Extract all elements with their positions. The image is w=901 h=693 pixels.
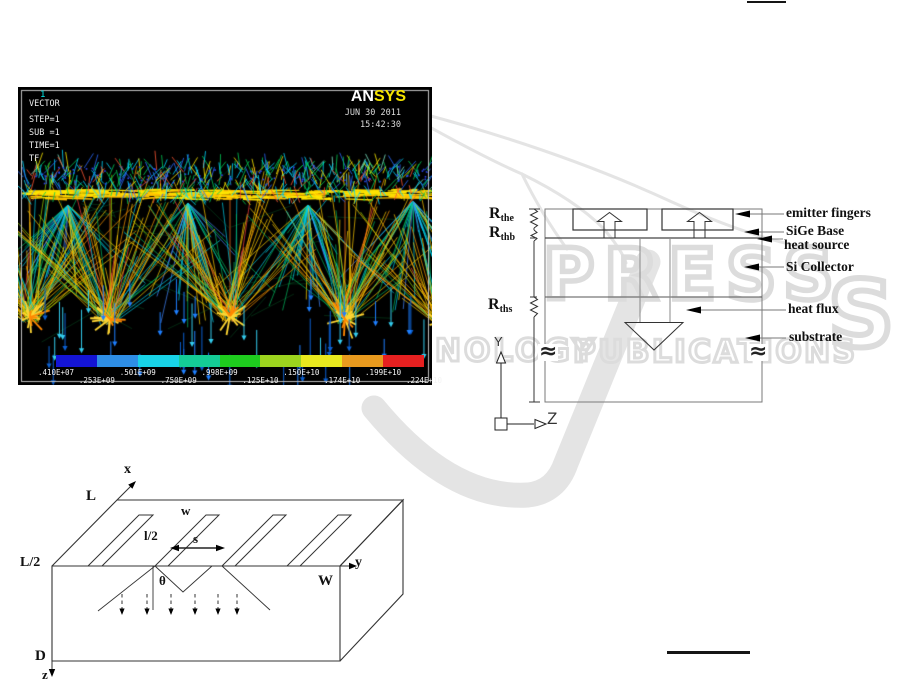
colorbar-segment <box>260 355 301 367</box>
axis-label-y: Y <box>494 335 503 348</box>
ansys-logo: ANSYS <box>351 89 406 105</box>
resistor-sub: the <box>501 213 514 224</box>
break-symbol-right: ≈ <box>748 344 768 361</box>
vector-field-canvas <box>18 87 432 385</box>
resistor-base: R <box>489 224 501 241</box>
label-z-axis: z <box>42 668 48 681</box>
plot-annotation: TIME=1 <box>29 142 60 151</box>
ansys-logo-an: AN <box>351 88 374 105</box>
resistor-base: R <box>489 205 501 222</box>
label-x-axis: x <box>124 463 131 477</box>
colorbar-value: .199E+10 <box>365 369 401 377</box>
label-sige-base: SiGe Base <box>786 224 844 238</box>
ansys-logo-sys: SYS <box>374 88 406 105</box>
colorbar-segment <box>179 355 220 367</box>
colorbar-value: .150E+10 <box>283 369 319 377</box>
label-substrate: substrate <box>789 330 842 344</box>
watermark-arc-upper <box>416 112 798 246</box>
colorbar-segment <box>138 355 179 367</box>
resistor-label-rths: Rths <box>488 297 512 315</box>
label-spacing-s: s <box>193 532 198 545</box>
plot-annotation: STEP=1 <box>29 116 60 125</box>
colorbar-segment <box>220 355 261 367</box>
label-heat-flux: heat flux <box>788 302 839 316</box>
colorbar-value: .174E+10 <box>324 377 360 385</box>
label-width-w: W <box>318 574 333 589</box>
bottom-right-rule <box>667 651 750 654</box>
colorbar-value: .224E+10 <box>406 377 442 385</box>
label-l-half: L/2 <box>20 556 40 570</box>
colorbar-value: .998E+09 <box>201 369 237 377</box>
plot-time: 15:42:30 <box>360 121 401 130</box>
label-theta-angle: θ <box>159 574 166 587</box>
colorbar-value: .750E+09 <box>161 377 197 385</box>
plot-annotation: TF <box>29 155 39 164</box>
top-right-rule <box>747 1 786 3</box>
plot-date: JUN 30 2011 <box>345 109 401 118</box>
colorbar-segment <box>342 355 383 367</box>
resistor-base: R <box>488 296 500 313</box>
break-symbol-left: ≈ <box>538 344 558 361</box>
paper-page: { "figure_plot": { "window_id": "1", "an… <box>0 0 901 693</box>
resistor-label-rthe: Rthe <box>489 206 514 224</box>
ansys-vector-figure: 1 VECTOR STEP=1 SUB =1 TIME=1 TF ANSYS J… <box>18 87 432 385</box>
colorbar-value: .501E+09 <box>120 369 156 377</box>
colorbar-value: .253E+09 <box>79 377 115 385</box>
plot-annotation: SUB =1 <box>29 129 60 138</box>
label-heat-source: heat source <box>784 238 849 252</box>
label-length-l: L <box>86 489 96 504</box>
label-si-collector: Si Collector <box>786 260 854 274</box>
colorbar-value: .125E+10 <box>242 377 278 385</box>
colorbar-segments <box>56 355 424 367</box>
resistor-label-rthb: Rthb <box>489 225 515 243</box>
label-emitter-fingers: emitter fingers <box>786 206 871 220</box>
colorbar-segment <box>97 355 138 367</box>
resistor-sub: thb <box>501 232 515 243</box>
plot-annotation: VECTOR <box>29 100 60 109</box>
label-depth-d: D <box>35 649 46 664</box>
colorbar-segment <box>56 355 97 367</box>
label-finger-width-w: w <box>181 504 190 517</box>
resistor-sub: ths <box>500 304 513 315</box>
colorbar-segment <box>301 355 342 367</box>
label-finger-half-length: l/2 <box>144 529 158 542</box>
label-y-axis: y <box>355 556 362 570</box>
axis-label-z: Z <box>547 410 557 427</box>
colorbar-value: .410E+07 <box>38 369 74 377</box>
colorbar-segment <box>383 355 424 367</box>
